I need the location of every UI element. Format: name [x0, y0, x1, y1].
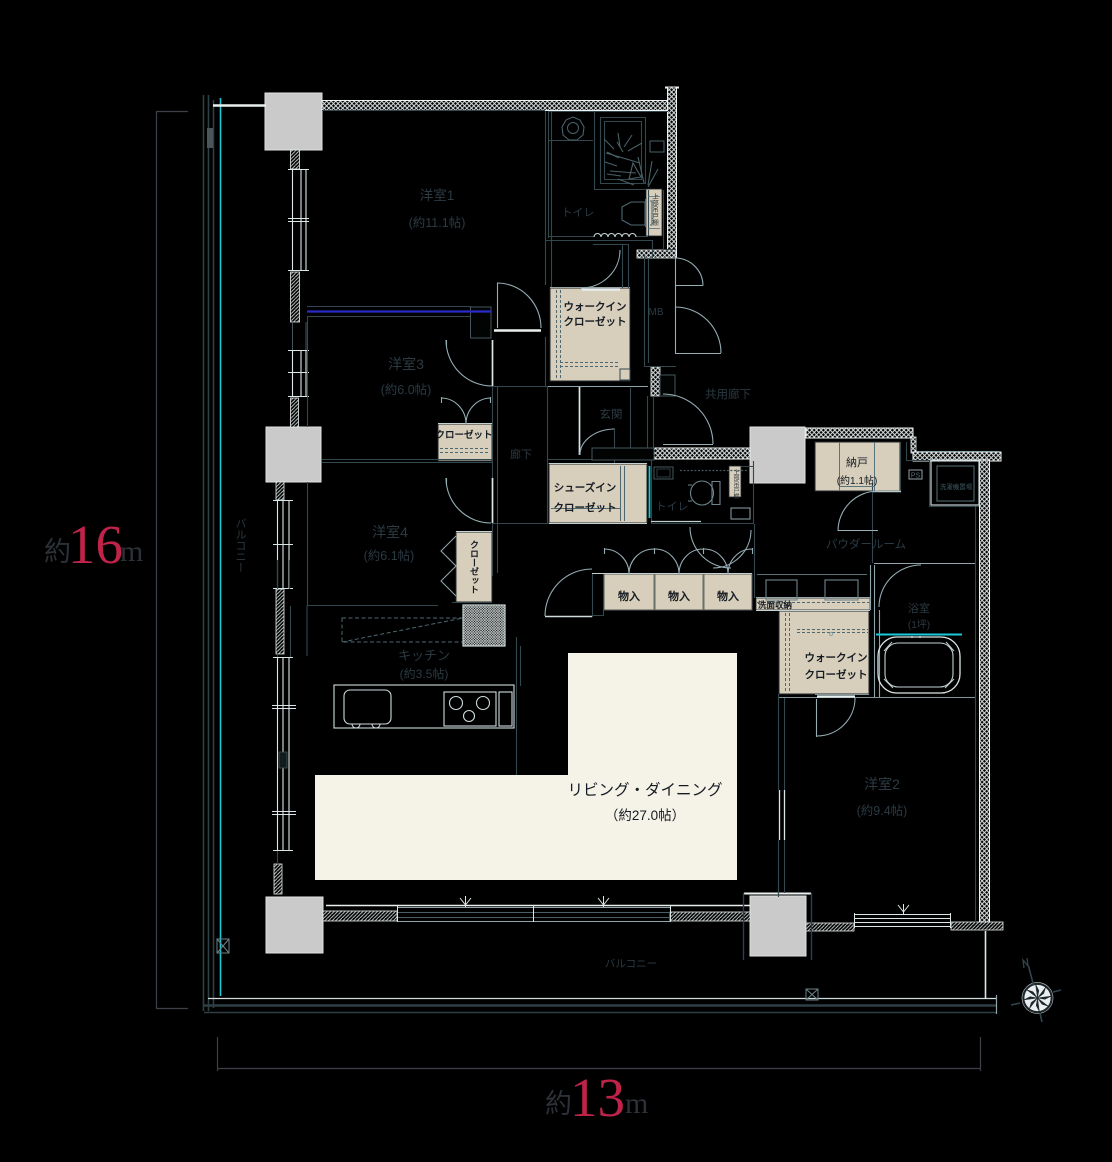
svg-text:m: m: [625, 1087, 648, 1120]
svg-text:クローゼット: クローゼット: [564, 315, 627, 328]
svg-text:(1坪): (1坪): [908, 618, 930, 631]
svg-text:ウォークイン: ウォークイン: [564, 301, 627, 313]
svg-text:バルコニー: バルコニー: [605, 958, 657, 970]
svg-text:キッチン: キッチン: [398, 648, 450, 663]
svg-text:上部吊戸棚: 上部吊戸棚: [732, 468, 739, 500]
svg-text:トイレ: トイレ: [656, 501, 689, 513]
svg-text:洗濯機置場: 洗濯機置場: [940, 482, 973, 491]
svg-text:16: 16: [68, 514, 123, 575]
svg-text:リビング・ダイニング: リビング・ダイニング: [567, 781, 722, 799]
svg-text:物入: 物入: [668, 589, 690, 603]
svg-text:約: 約: [545, 1089, 572, 1119]
svg-text:(約3.5帖): (約3.5帖): [400, 666, 449, 681]
svg-text:洋室4: 洋室4: [372, 524, 408, 540]
svg-text:洋室3: 洋室3: [388, 356, 424, 372]
svg-text:クローゼット: クローゼット: [435, 429, 492, 441]
svg-text:(約6.1帖): (約6.1帖): [364, 548, 415, 563]
svg-text:納戸: 納戸: [846, 456, 868, 469]
svg-text:クローゼット: クローゼット: [805, 668, 868, 681]
svg-text:(約1.1帖): (約1.1帖): [837, 474, 878, 487]
svg-text:バルコニー: バルコニー: [234, 518, 247, 573]
svg-text:ウォークイン: ウォークイン: [805, 652, 868, 664]
svg-text:洗面収納: 洗面収納: [758, 600, 792, 610]
svg-text:浴室: 浴室: [908, 601, 930, 615]
svg-text:クローゼット: クローゼット: [554, 501, 617, 514]
svg-text:シューズイン: シューズイン: [554, 481, 616, 494]
svg-text:洋室2: 洋室2: [864, 776, 900, 792]
svg-text:(約9.4帖): (約9.4帖): [857, 803, 908, 818]
svg-text:トイレ: トイレ: [562, 207, 595, 219]
svg-text:物入: 物入: [618, 589, 640, 603]
svg-text:(約11.1帖): (約11.1帖): [409, 215, 466, 230]
svg-text:13: 13: [570, 1067, 625, 1128]
svg-text:約: 約: [44, 537, 71, 567]
svg-text:廊下: 廊下: [510, 447, 532, 461]
svg-text:（約27.0帖）: （約27.0帖）: [605, 808, 685, 823]
svg-text:洋室1: 洋室1: [420, 187, 455, 203]
svg-text:共用廊下: 共用廊下: [705, 387, 751, 401]
svg-text:パウダールーム: パウダールーム: [826, 537, 906, 551]
svg-text:玄関: 玄関: [600, 407, 623, 421]
svg-text:(約6.0帖): (約6.0帖): [381, 382, 432, 397]
svg-text:m: m: [120, 535, 143, 568]
svg-text:PS: PS: [911, 473, 921, 480]
svg-text:MB: MB: [649, 307, 664, 318]
svg-text:物入: 物入: [717, 589, 739, 603]
svg-text:クローゼット: クローゼット: [469, 540, 479, 594]
